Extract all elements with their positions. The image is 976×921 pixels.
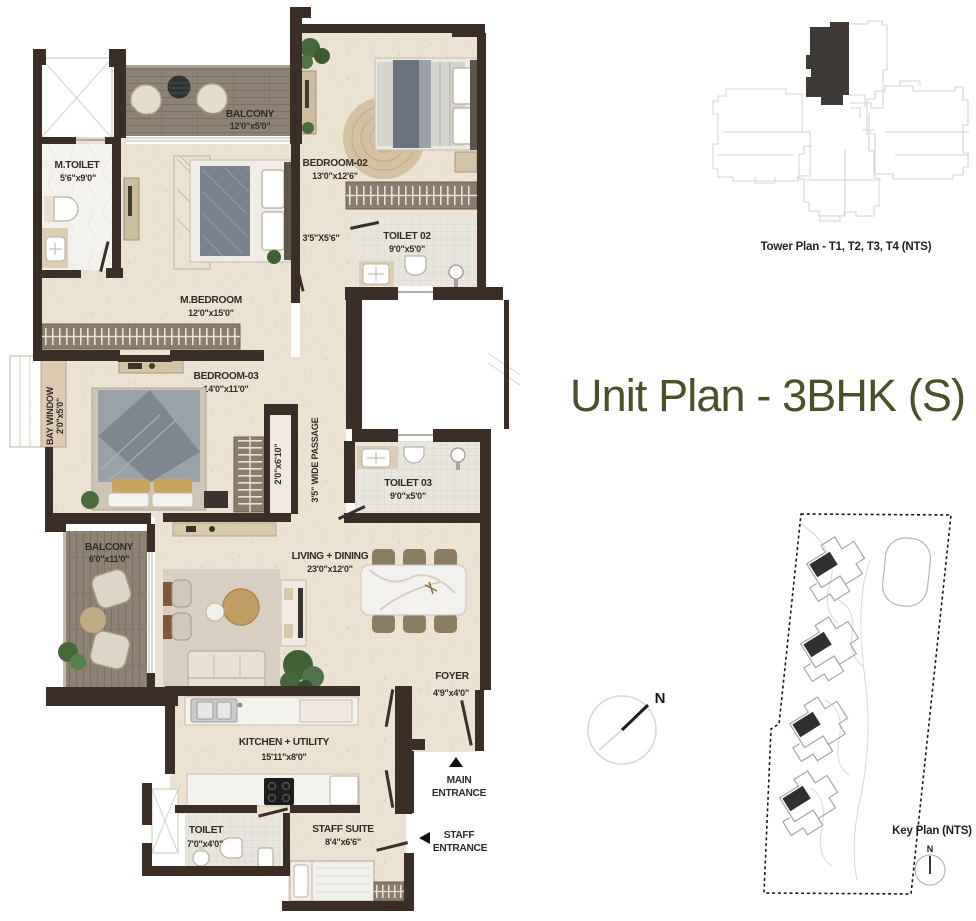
svg-text:ENTRANCE: ENTRANCE — [433, 843, 488, 854]
svg-text:14'0"x11'0": 14'0"x11'0" — [203, 384, 248, 394]
svg-text:5'6"x9'0": 5'6"x9'0" — [60, 173, 96, 183]
svg-text:N: N — [927, 844, 934, 854]
svg-text:15'11"x8'0": 15'11"x8'0" — [261, 752, 306, 762]
svg-text:STAFF SUITE: STAFF SUITE — [312, 824, 374, 835]
svg-text:KITCHEN + UTILITY: KITCHEN + UTILITY — [239, 737, 330, 748]
svg-text:8'4"x6'6": 8'4"x6'6" — [325, 837, 361, 847]
svg-text:6'0"x11'0": 6'0"x11'0" — [89, 554, 129, 564]
svg-text:2'0"x5'0": 2'0"x5'0" — [55, 398, 65, 434]
svg-text:TOILET 02: TOILET 02 — [383, 231, 431, 242]
svg-text:Unit Plan - 3BHK (S): Unit Plan - 3BHK (S) — [570, 370, 966, 421]
svg-text:BAY WINDOW: BAY WINDOW — [45, 386, 55, 445]
svg-text:FOYER: FOYER — [435, 671, 470, 682]
svg-text:TOILET: TOILET — [189, 825, 224, 836]
svg-text:BALCONY: BALCONY — [85, 542, 134, 553]
svg-text:STAFF: STAFF — [444, 830, 475, 841]
svg-text:BEDROOM-03: BEDROOM-03 — [194, 371, 260, 382]
svg-text:M.TOILET: M.TOILET — [55, 160, 101, 171]
svg-text:Key Plan (NTS): Key Plan (NTS) — [892, 825, 972, 837]
svg-text:13'0"x12'6": 13'0"x12'6" — [312, 171, 358, 181]
svg-text:12'0"x15'0": 12'0"x15'0" — [188, 308, 234, 318]
svg-text:2'0"x6'10": 2'0"x6'10" — [273, 444, 283, 485]
svg-text:9'0"x5'0": 9'0"x5'0" — [390, 491, 426, 501]
svg-text:TOILET 03: TOILET 03 — [384, 478, 432, 489]
svg-text:7'0"x4'0": 7'0"x4'0" — [187, 839, 223, 849]
svg-text:9'0"x5'0": 9'0"x5'0" — [389, 244, 425, 254]
svg-text:BALCONY: BALCONY — [226, 109, 275, 120]
svg-text:3'5" WIDE PASSAGE: 3'5" WIDE PASSAGE — [310, 417, 320, 502]
svg-text:4'9"x4'0": 4'9"x4'0" — [433, 688, 469, 698]
svg-text:N: N — [655, 690, 666, 707]
svg-text:Tower Plan - T1, T2, T3, T4 (N: Tower Plan - T1, T2, T3, T4 (NTS) — [761, 241, 932, 253]
svg-text:M.BEDROOM: M.BEDROOM — [180, 295, 242, 306]
svg-text:12'0"x5'0": 12'0"x5'0" — [230, 121, 271, 131]
svg-text:BEDROOM-02: BEDROOM-02 — [303, 158, 369, 169]
svg-text:23'0"x12'0": 23'0"x12'0" — [307, 564, 353, 574]
svg-text:ENTRANCE: ENTRANCE — [432, 788, 487, 799]
svg-text:MAIN: MAIN — [447, 775, 472, 786]
svg-text:LIVING + DINING: LIVING + DINING — [292, 551, 369, 562]
svg-text:3'5"X5'6": 3'5"X5'6" — [302, 233, 339, 243]
